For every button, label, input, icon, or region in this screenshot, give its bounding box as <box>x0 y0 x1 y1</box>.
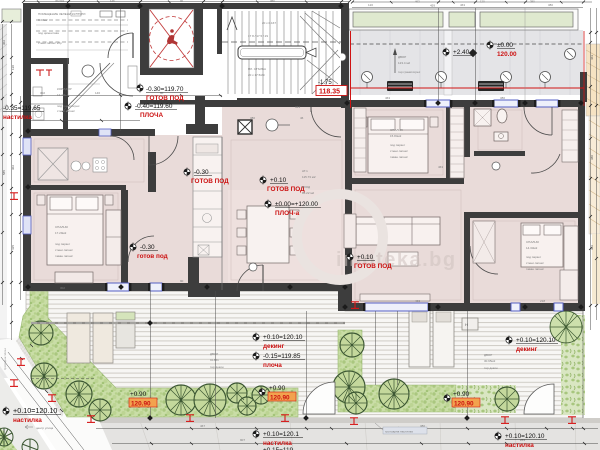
svg-text:ПЛ. СТЪЛБА: ПЛ. СТЪЛБА <box>248 67 266 71</box>
svg-text:настилка: настилка <box>505 442 534 449</box>
svg-text:КОРИДОР: КОРИДОР <box>57 87 72 91</box>
svg-text:ГОТОВ ПОД: ГОТОВ ПОД <box>354 263 392 270</box>
svg-text:20 x 0.167: 20 x 0.167 <box>262 21 276 25</box>
svg-text:ГОТОВ ПОД: ГОТОВ ПОД <box>191 178 229 185</box>
svg-text:585: 585 <box>2 170 6 175</box>
svg-text:СПАЛНЯ: СПАЛНЯ <box>390 128 403 132</box>
svg-text:+0.90: +0.90 <box>130 391 147 398</box>
svg-text:декинг: декинг <box>263 343 285 350</box>
svg-text:463: 463 <box>385 96 390 100</box>
svg-text:+0.10=120.10: +0.10=120.10 <box>505 433 545 440</box>
svg-text:120: 120 <box>368 3 373 7</box>
svg-text:готов под: готов под <box>137 253 168 260</box>
svg-text:таван латекс: таван латекс <box>526 267 544 271</box>
svg-text:стени латекс: стени латекс <box>55 248 73 252</box>
svg-text:-0.40=119.60: -0.40=119.60 <box>135 103 173 110</box>
svg-text:380: 380 <box>270 0 275 3</box>
svg-text:±0.00: ±0.00 <box>497 42 513 49</box>
svg-text:302: 302 <box>11 165 15 170</box>
svg-text:тер гранитогрес: тер гранитогрес <box>398 70 421 74</box>
svg-text:17.29м2: 17.29м2 <box>55 231 67 235</box>
svg-text:под паркет: под паркет <box>526 255 542 259</box>
svg-text:46: 46 <box>300 116 304 120</box>
svg-text:463: 463 <box>438 165 443 169</box>
svg-text:тер декин: тер декин <box>210 365 224 369</box>
svg-text:459: 459 <box>430 4 435 8</box>
svg-text:415: 415 <box>11 245 15 250</box>
svg-text:115.73 м2: 115.73 м2 <box>302 175 316 179</box>
svg-text:343: 343 <box>295 105 300 109</box>
svg-text:907: 907 <box>240 438 245 442</box>
svg-text:146: 146 <box>110 0 115 3</box>
svg-text:ПОМЕЩЕНИЕ ЗЕЛЕНИ КУЛТУРИ: ПОМЕЩЕНИЕ ЗЕЛЕНИ КУЛТУРИ <box>38 12 85 16</box>
svg-text:+0.10: +0.10 <box>357 254 374 261</box>
svg-text:ДВОР: ДВОР <box>484 353 492 357</box>
svg-text:463: 463 <box>460 3 465 7</box>
svg-text:СПАЛНЯ: СПАЛНЯ <box>55 225 68 229</box>
svg-text:120.90: 120.90 <box>131 401 151 408</box>
svg-text:ПЛОЧ-а: ПЛОЧ-а <box>275 210 300 217</box>
svg-text:ГОТОВ ПОД: ГОТОВ ПОД <box>267 186 305 193</box>
svg-text:146: 146 <box>95 91 100 95</box>
svg-text:302: 302 <box>40 91 45 95</box>
svg-text:СПАЛНЯ: СПАЛНЯ <box>526 240 539 244</box>
svg-text:-0.30: -0.30 <box>194 169 209 176</box>
svg-text:таван латекс: таван латекс <box>390 155 408 159</box>
svg-text:380: 380 <box>500 96 505 100</box>
svg-text:3.04м2: 3.04м2 <box>38 18 48 22</box>
svg-text:+0.10=120.10: +0.10=120.10 <box>263 334 303 341</box>
svg-text:стени латекс: стени латекс <box>57 109 75 113</box>
svg-text:под гранитогрес: под гранитогрес <box>57 104 80 108</box>
svg-text:+0.90: +0.90 <box>453 391 470 398</box>
svg-text:20 x 17.5/29: 20 x 17.5/29 <box>248 73 265 77</box>
svg-text:+0.10: +0.10 <box>270 177 287 184</box>
svg-text:+2.40: +2.40 <box>453 49 470 56</box>
svg-text:463: 463 <box>415 299 420 303</box>
svg-text:380: 380 <box>590 155 594 160</box>
svg-text:302: 302 <box>590 245 594 250</box>
svg-text:ГОТОВ ПОД: ГОТОВ ПОД <box>146 95 184 102</box>
svg-text:463: 463 <box>415 0 420 3</box>
svg-text:АТ.1: АТ.1 <box>302 169 308 173</box>
svg-text:302: 302 <box>60 0 65 3</box>
svg-text:+0.10=120.1: +0.10=120.1 <box>263 431 299 438</box>
svg-text:тротоарни плочи: тротоарни плочи <box>3 348 7 370</box>
svg-text:центр улица: центр улица <box>36 426 53 430</box>
svg-text:CL861: CL861 <box>210 358 219 362</box>
svg-text:±0.00=+120.00: ±0.00=+120.00 <box>275 201 318 208</box>
svg-text:123.4 м2: 123.4 м2 <box>398 61 410 65</box>
svg-text:17 8 / 17.5 / 29: 17 8 / 17.5 / 29 <box>248 34 268 38</box>
svg-text:302: 302 <box>2 40 6 45</box>
svg-text:85.22 м2: 85.22 м2 <box>302 191 314 195</box>
svg-text:-0.15=119.85: -0.15=119.85 <box>263 353 301 360</box>
svg-text:120.90: 120.90 <box>270 395 290 402</box>
svg-text:ДВОР: ДВОР <box>398 55 406 59</box>
svg-text:120.00: 120.00 <box>497 51 517 58</box>
svg-text:90: 90 <box>180 279 184 283</box>
svg-text:90: 90 <box>180 0 184 3</box>
svg-text:тротоарна настилка: тротоарна настилка <box>385 430 413 434</box>
svg-text:118.35: 118.35 <box>319 89 340 96</box>
svg-text:+0.90: +0.90 <box>269 385 286 392</box>
svg-text:380: 380 <box>548 3 553 7</box>
svg-text:+0.10=120.10: +0.10=120.10 <box>516 337 556 344</box>
svg-text:под паркет: под паркет <box>55 242 71 246</box>
svg-text:380: 380 <box>530 0 535 3</box>
svg-text:467: 467 <box>200 424 205 428</box>
svg-text:302: 302 <box>60 286 65 290</box>
svg-text:ДВОР: ДВОР <box>210 352 218 356</box>
svg-text:13.43м2: 13.43м2 <box>57 93 69 97</box>
svg-text:стени латекс: стени латекс <box>390 149 408 153</box>
svg-text:15.84м2: 15.84м2 <box>390 134 402 138</box>
svg-text:120: 120 <box>11 65 15 70</box>
svg-text:380: 380 <box>250 116 255 120</box>
svg-text:плоча: плоча <box>263 362 282 369</box>
svg-text:настилка: настилка <box>3 114 32 121</box>
svg-text:+0.10=120.10: +0.10=120.10 <box>13 406 57 415</box>
svg-text:120: 120 <box>480 0 485 3</box>
svg-text:стени латекс: стени латекс <box>526 261 544 265</box>
svg-text:стени латекс 2бр: стени латекс 2бр <box>38 41 62 45</box>
svg-text:120.90: 120.90 <box>454 401 474 408</box>
svg-text:тер декин: тер декин <box>484 366 498 370</box>
svg-text:-0.30=119.70: -0.30=119.70 <box>146 86 184 93</box>
svg-text:463: 463 <box>590 55 594 60</box>
svg-text:30.95м2: 30.95м2 <box>484 359 496 363</box>
svg-text:декинг: декинг <box>516 346 538 353</box>
svg-text:14.33м2: 14.33м2 <box>526 246 538 250</box>
svg-text:ПЛОЧА: ПЛОЧА <box>140 112 164 119</box>
svg-text:настилка: настилка <box>13 417 42 424</box>
svg-text:-0.35=119.65: -0.35=119.65 <box>3 105 41 112</box>
svg-text:настилка: настилка <box>263 440 292 447</box>
svg-text:таван латекс: таван латекс <box>55 254 73 258</box>
svg-text:-0.30: -0.30 <box>140 244 155 251</box>
svg-text:ВХОД: ВХОД <box>302 185 310 189</box>
svg-text:под паркет: под паркет <box>390 143 406 147</box>
svg-text:218: 218 <box>540 299 545 303</box>
svg-text:под циментова: под циментова <box>38 31 59 35</box>
